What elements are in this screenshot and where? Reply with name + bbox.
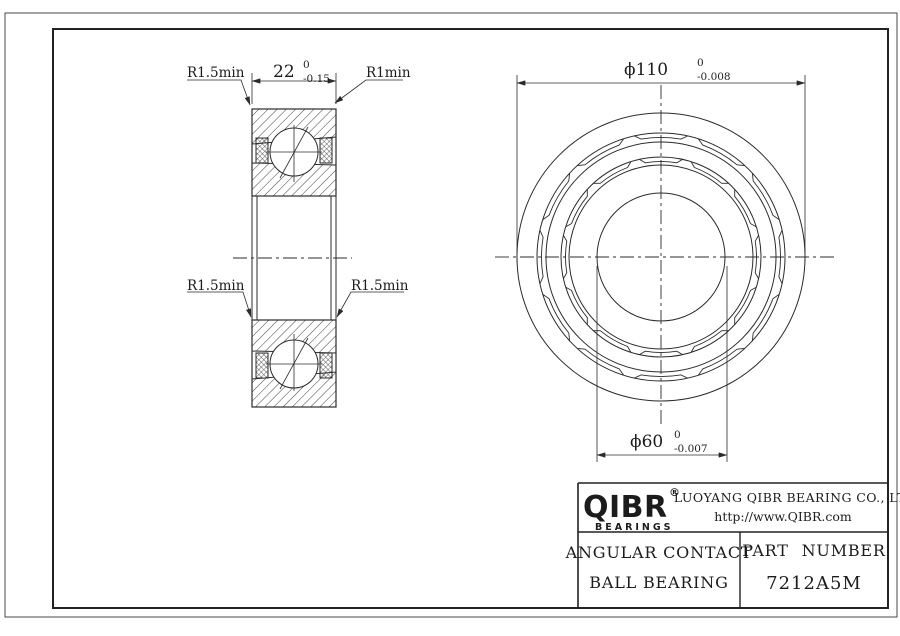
logo-text: QIBR [583,490,668,525]
cage-pocket [634,375,688,378]
company-name: LUOYANG QIBR BEARING CO., LTD [674,490,900,505]
product-type-line1: ANGULAR CONTACT [565,543,753,562]
bearing-section-half [252,109,336,196]
cage-pocket [577,139,624,166]
cage-pocket [698,139,745,166]
front-view: ϕ110 0 -0.008 ϕ60 0 -0.007 [495,57,838,462]
part-number-label: PART NUMBER [742,541,886,560]
width-dimension: 22 0 -0.15 [252,59,336,104]
od-lower-tolerance: -0.008 [697,71,731,83]
bearing-section-half-lower [252,320,336,407]
fillet-label-top-right: R1min [366,65,411,81]
part-number-value: 7212A5M [766,573,862,594]
website-url: http://www.QIBR.com [714,509,852,524]
bore-upper-tolerance: 0 [674,429,681,441]
page-border [5,13,897,617]
cage-pocket [698,348,745,375]
bore-lower-tolerance: -0.007 [674,443,708,455]
bore-diameter-dimension: ϕ60 0 -0.007 [597,266,727,462]
logo-subtext: BEARINGS [595,522,674,533]
cage-pocket [752,294,779,341]
fillet-label-top-left: R1.5min [187,65,245,81]
width-lower-tolerance: -0.15 [303,73,330,85]
od-dimension-value: ϕ110 [624,60,668,80]
width-upper-tolerance: 0 [303,59,310,71]
outer-diameter-circle [517,113,805,401]
cage-pocket [752,173,779,220]
bearing-engineering-drawing: 22 0 -0.15 R1.5min R1min R1.5min R1.5min [0,0,900,636]
logo: QIBR ® BEARINGS [583,486,680,533]
bore-dimension-value: ϕ60 [630,432,663,452]
width-dimension-value: 22 [273,62,295,82]
drawing-sheet: 22 0 -0.15 R1.5min R1min R1.5min R1.5min [0,0,900,636]
cage-section-left [256,138,268,163]
cage-pocket [543,294,570,341]
title-block: QIBR ® BEARINGS LUOYANG QIBR BEARING CO.… [565,483,900,608]
cage-pocket [543,173,570,220]
od-upper-tolerance: 0 [697,57,704,69]
product-type-line2: BALL BEARING [589,573,728,592]
cage-pocket [577,348,624,375]
cross-section-view: 22 0 -0.15 R1.5min R1min R1.5min R1.5min [187,59,411,407]
cage-section-right [320,138,332,163]
